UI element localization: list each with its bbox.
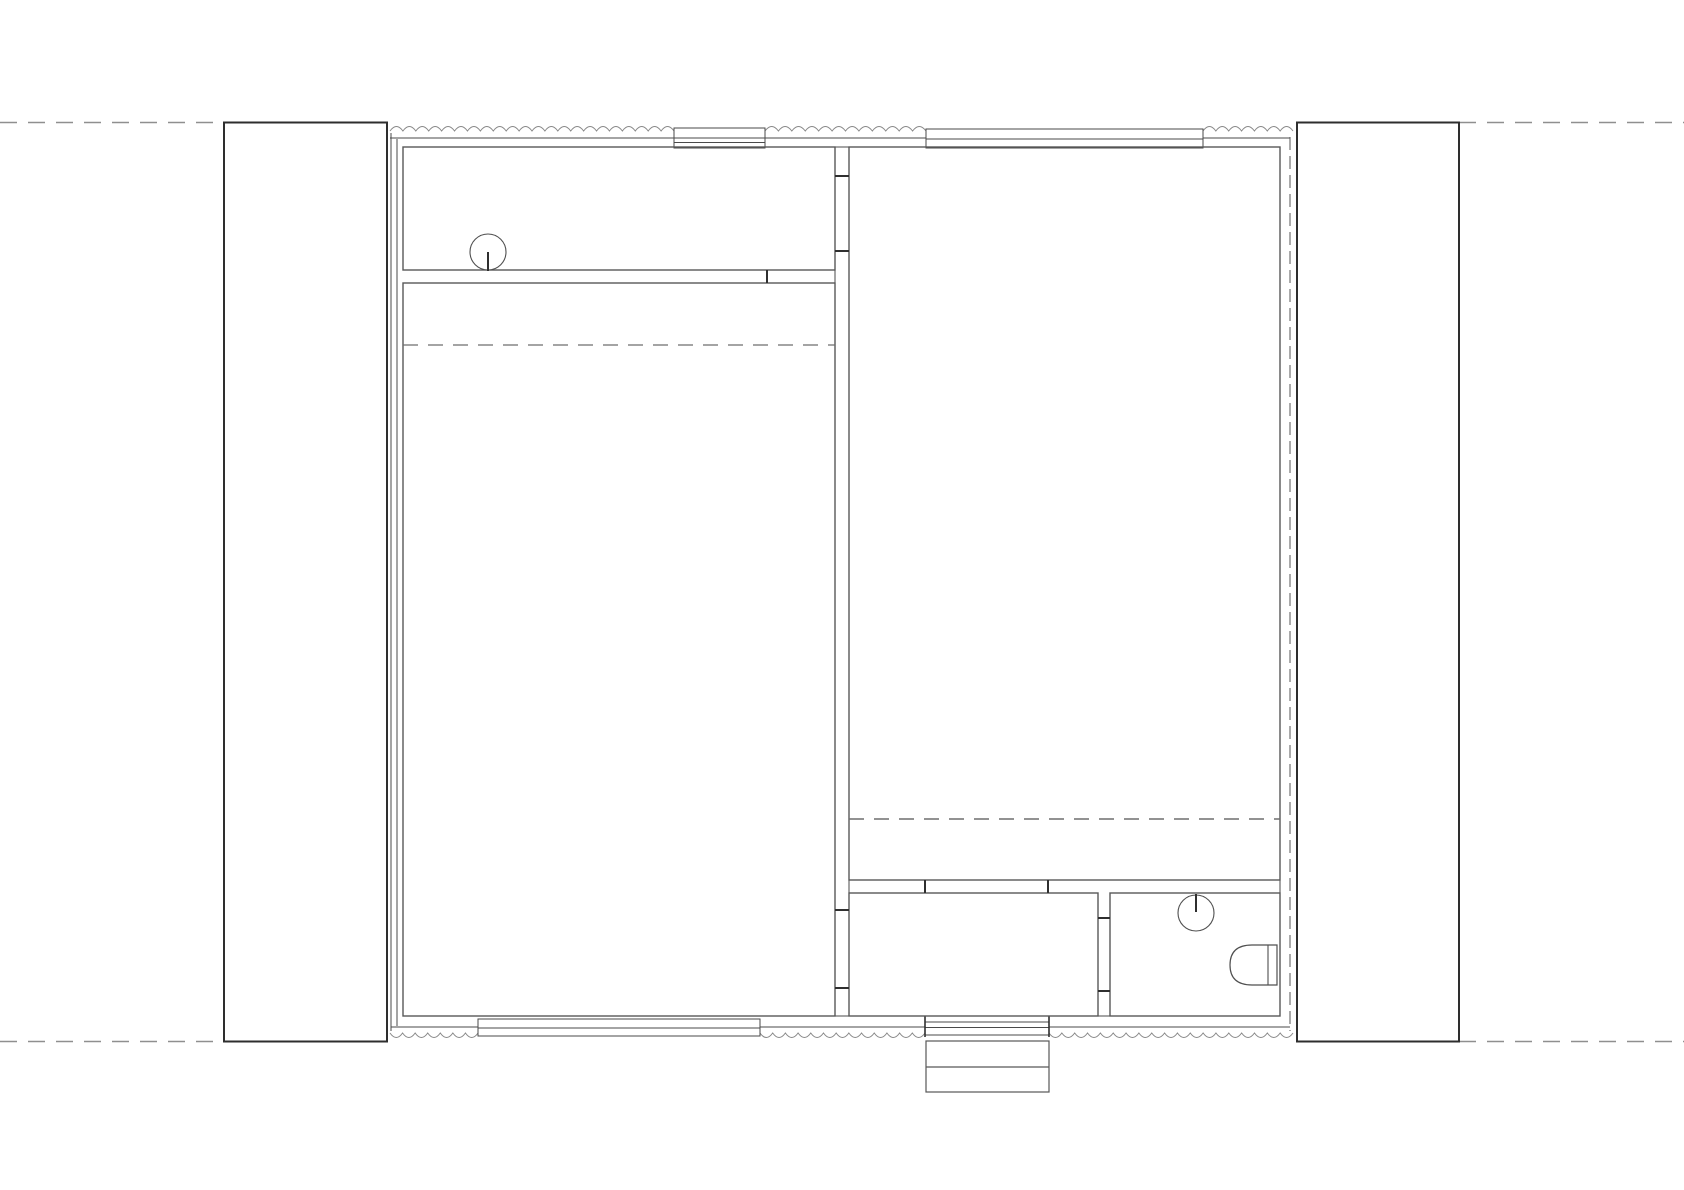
layer-loft-edges [403,345,1280,819]
entry-door-leaf [925,1022,1049,1035]
room-main-east [849,147,1280,880]
insulation-south-west [390,1033,478,1038]
insulation-north-west [390,127,674,132]
pier-east [1297,123,1459,1042]
layer-door-jambs [767,176,1110,991]
toilet-bowl [1230,945,1277,985]
insulation-north-east [1203,127,1293,132]
layer-entry-door-parts [925,1016,1049,1037]
layer-fixtures [470,234,1277,985]
layer-window-units [478,128,1203,1036]
pier-west [224,123,387,1042]
layer-insulation-runs [390,127,1293,1038]
layer-columns [224,123,1459,1042]
floor-plan-page [0,0,1684,1190]
layer-wall-lines [390,133,1290,1031]
room-vestibule-south [849,893,1098,1016]
room-utility-northwest [403,147,835,270]
layer-rooms [403,147,1280,1016]
layer-steps-parts [926,1041,1049,1092]
insulation-north-mid [765,127,926,132]
room-main-west [403,283,835,1016]
insulation-south-east [1049,1033,1293,1038]
floor-plan-canvas [0,0,1684,1190]
insulation-south-mid [760,1033,925,1038]
